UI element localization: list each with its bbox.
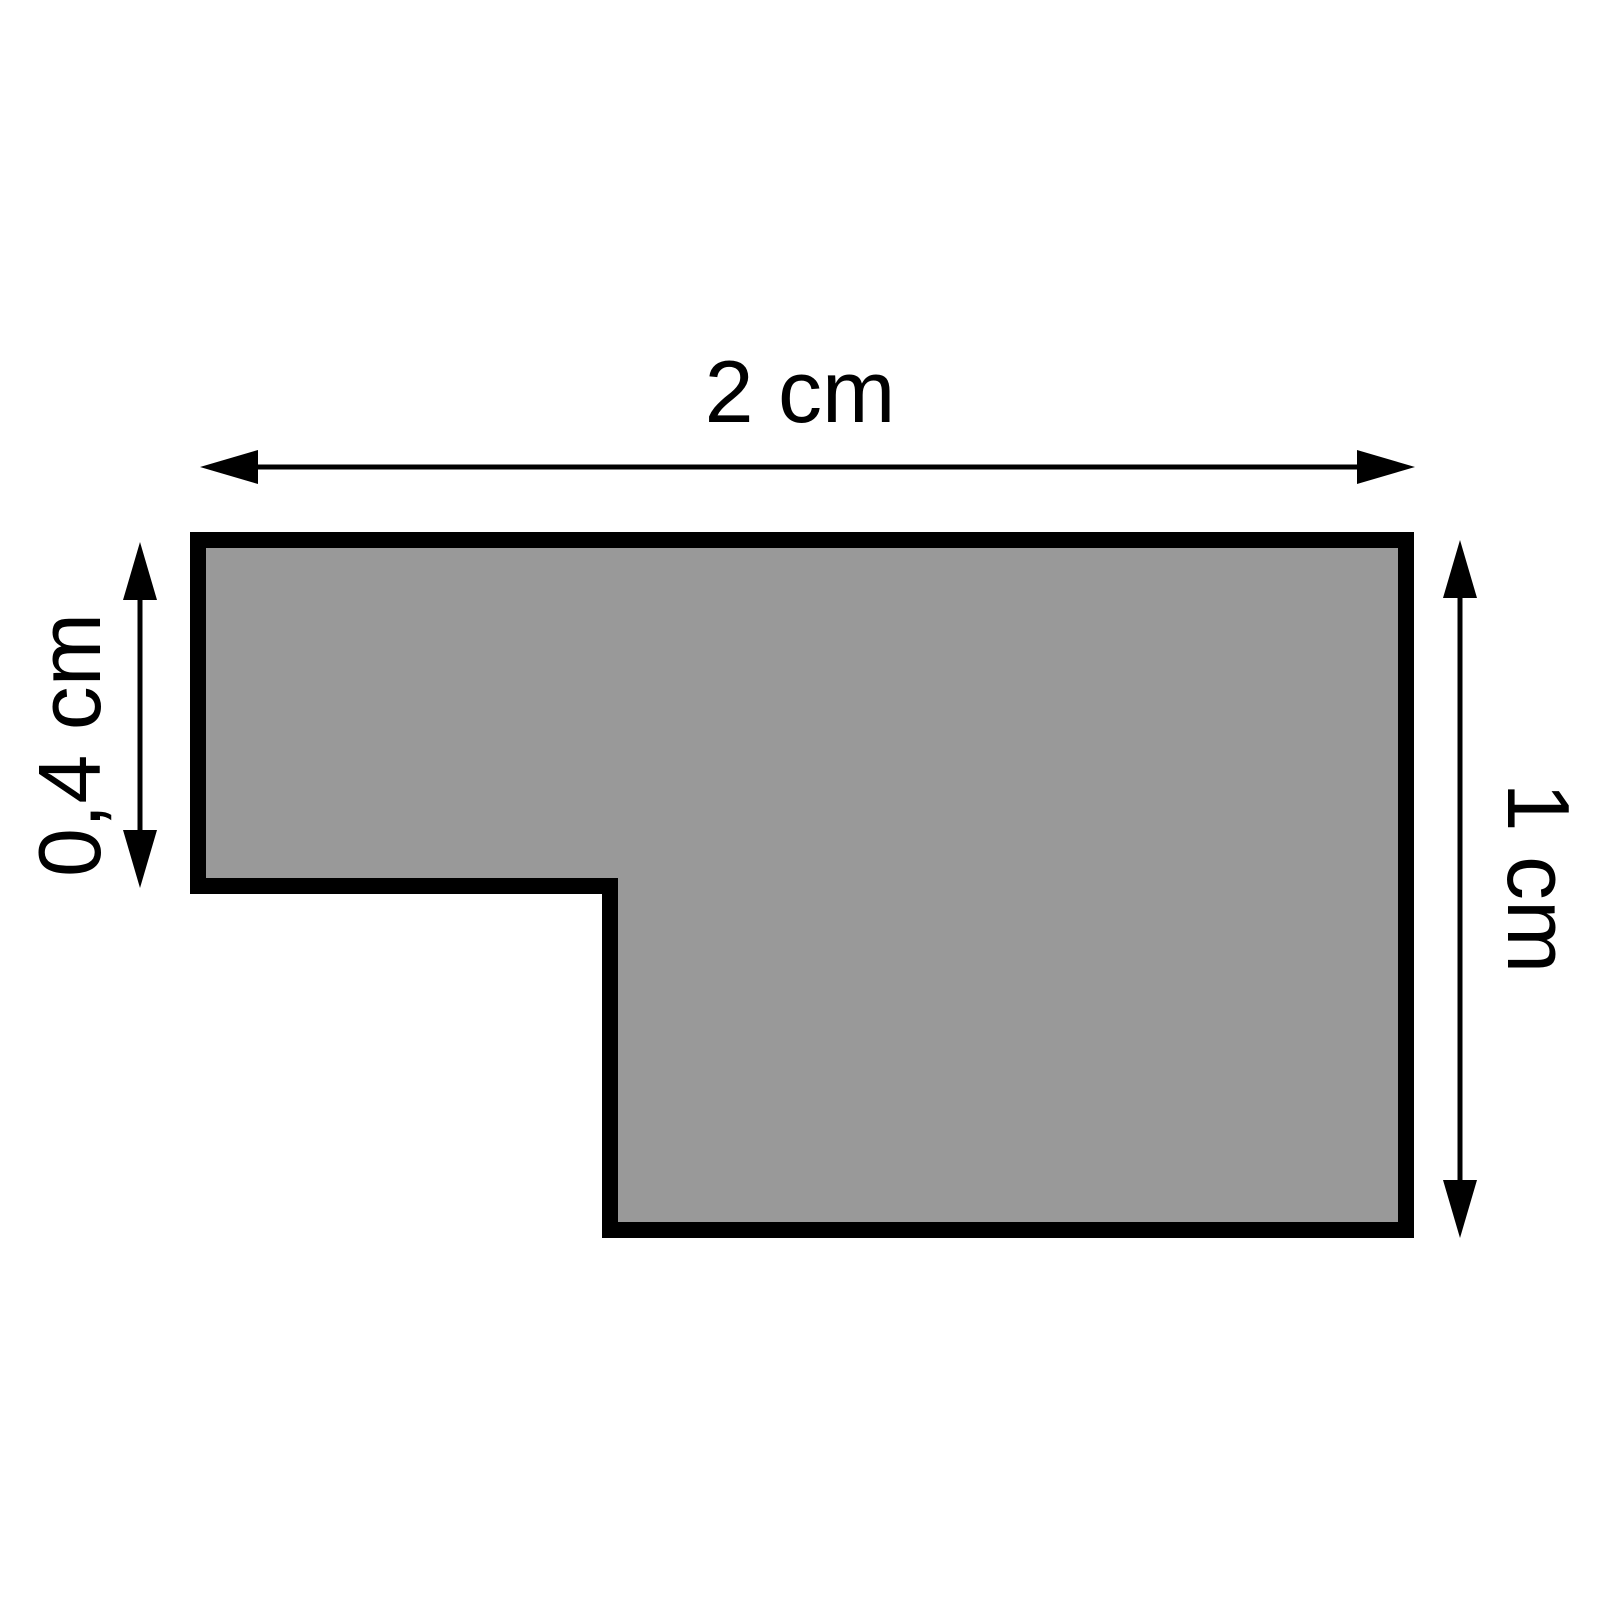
right-height-dimension-arrow [1443,540,1477,1238]
geometry-diagram: 2 cm 0,4 cm 1 cm [0,0,1600,1600]
width-dimension-arrow [200,450,1415,484]
arrow-head-up-icon [123,542,157,600]
width-dimension-label: 2 cm [705,342,896,441]
l-shape-polygon [198,540,1406,1230]
arrow-head-down-icon [123,830,157,888]
left-height-dimension-arrow [123,542,157,888]
left-height-dimension-label: 0,4 cm [20,613,119,877]
arrow-head-up-icon [1443,540,1477,598]
diagram-page: 2 cm 0,4 cm 1 cm [0,0,1600,1600]
arrow-head-down-icon [1443,1180,1477,1238]
arrow-head-right-icon [1357,450,1415,484]
arrow-head-left-icon [200,450,258,484]
right-height-dimension-label: 1 cm [1489,783,1588,974]
